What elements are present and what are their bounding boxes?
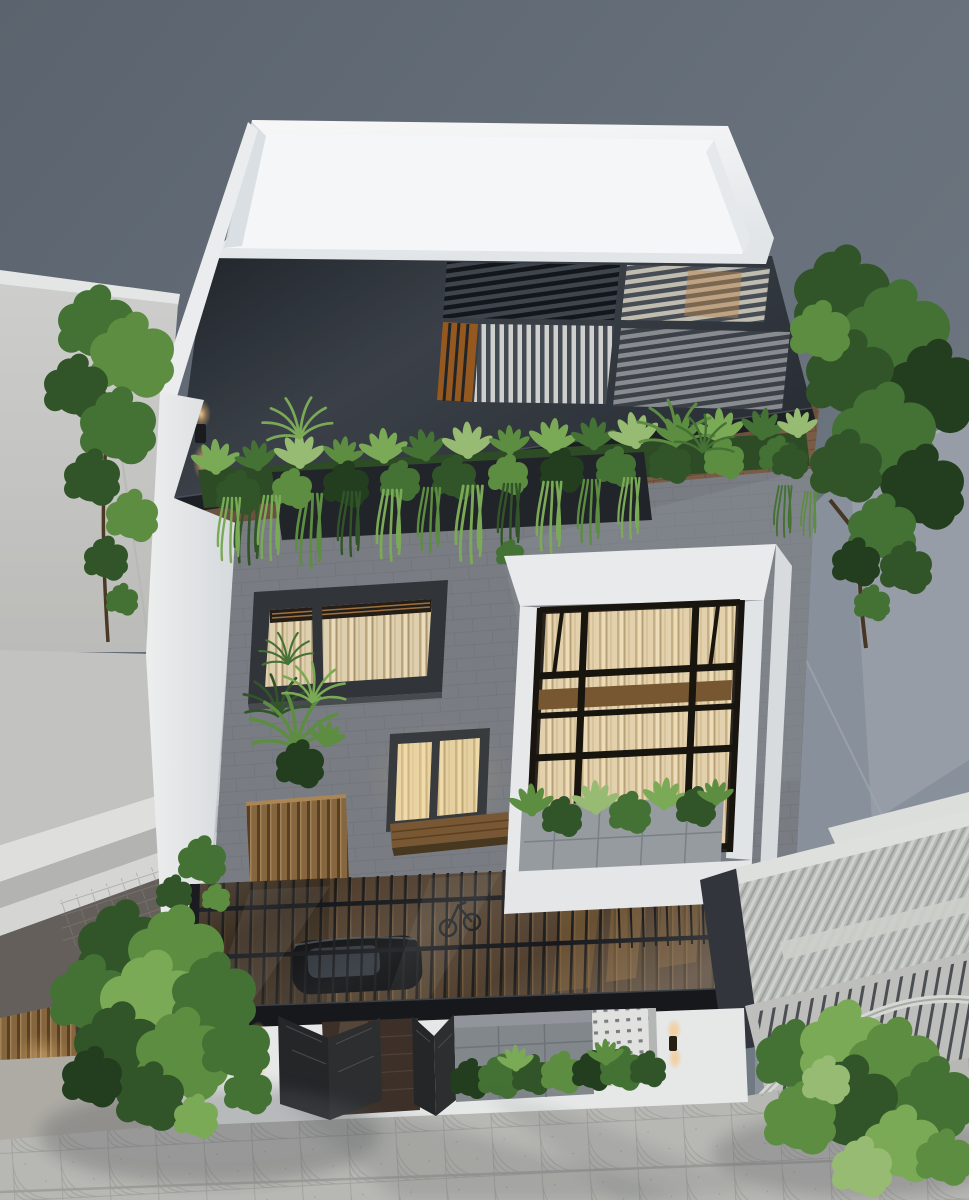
render-canvas: 88 — [0, 0, 969, 1200]
vignette — [0, 0, 969, 1200]
scene-svg: 88 — [0, 0, 969, 1200]
